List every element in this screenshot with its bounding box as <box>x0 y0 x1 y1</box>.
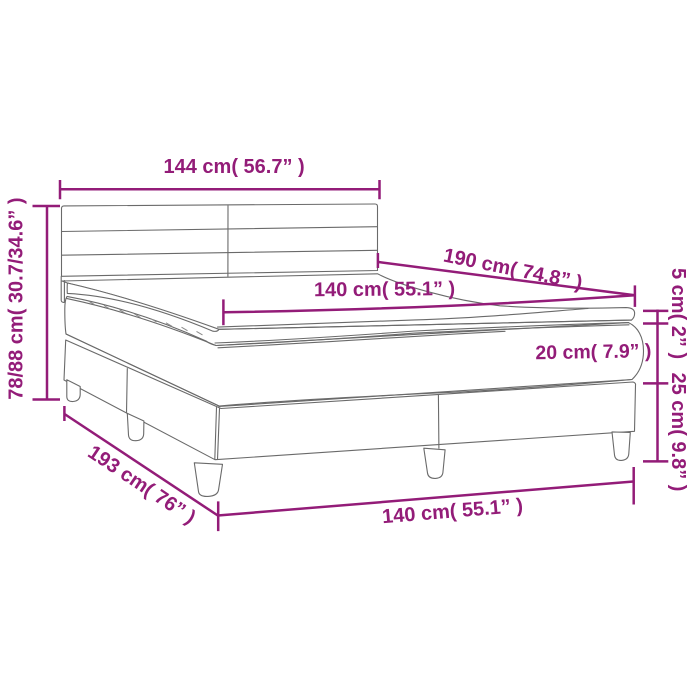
svg-text:78/88 cm( 30.7/34.6” ): 78/88 cm( 30.7/34.6” ) <box>6 197 28 399</box>
svg-text:5 cm( 2” ): 5 cm( 2” ) <box>667 268 689 359</box>
svg-text:25 cm( 9.8” ): 25 cm( 9.8” ) <box>667 373 689 492</box>
svg-text:20 cm( 7.9” ): 20 cm( 7.9” ) <box>535 340 651 364</box>
svg-text:140 cm( 55.1” ): 140 cm( 55.1” ) <box>314 278 455 301</box>
svg-text:144 cm( 56.7” ): 144 cm( 56.7” ) <box>164 156 305 178</box>
